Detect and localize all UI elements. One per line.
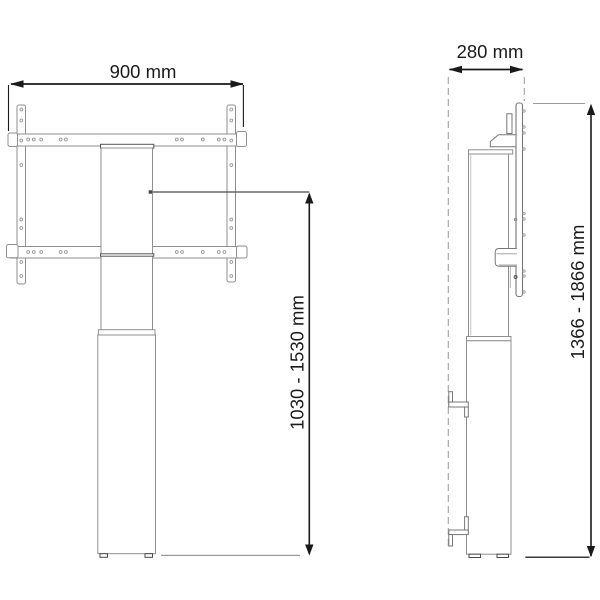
svg-text:1366 - 1866 mm: 1366 - 1866 mm — [567, 225, 588, 360]
svg-text:900 mm: 900 mm — [110, 61, 177, 82]
svg-text:1030 - 1530 mm: 1030 - 1530 mm — [287, 295, 308, 430]
svg-text:280 mm: 280 mm — [457, 41, 524, 62]
